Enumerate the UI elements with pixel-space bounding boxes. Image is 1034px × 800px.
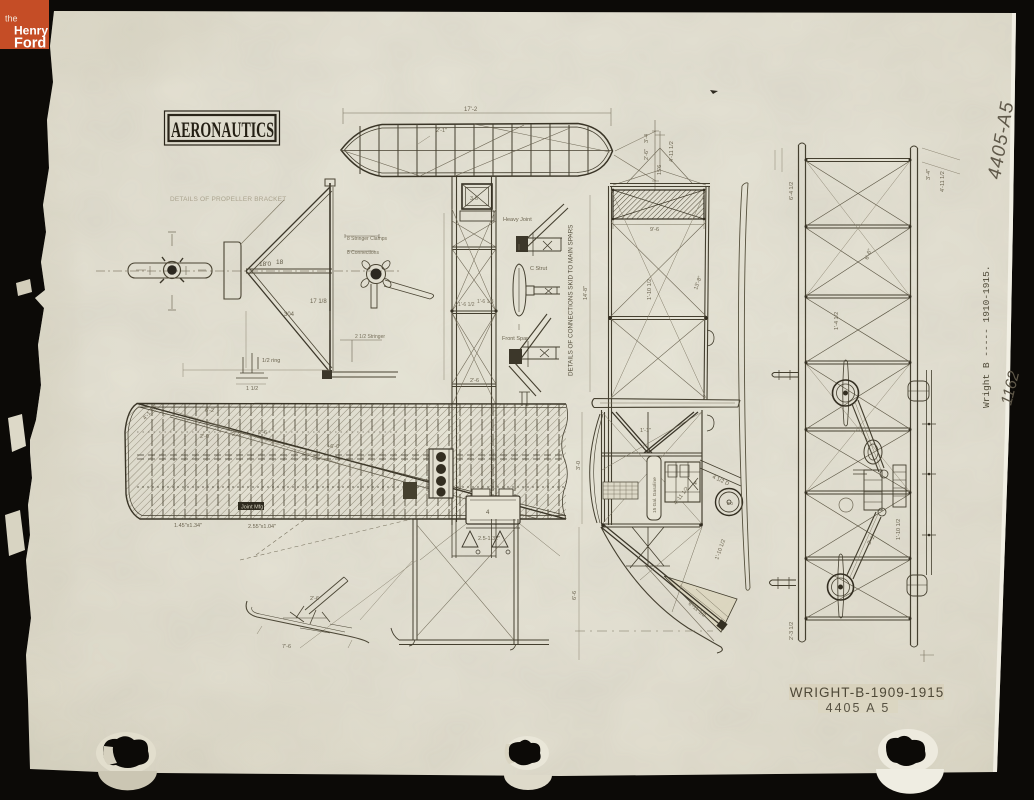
- svg-text:2'-6: 2'-6: [310, 596, 319, 602]
- svg-text:Ford: Ford: [14, 36, 46, 52]
- svg-text:1.45"x1.34": 1.45"x1.34": [174, 523, 202, 529]
- svg-text:18: 18: [276, 259, 284, 266]
- svg-text:Heavy Joint: Heavy Joint: [503, 217, 532, 223]
- svg-text:2'-1": 2'-1": [436, 128, 447, 134]
- svg-text:8 Connections: 8 Connections: [347, 250, 379, 256]
- svg-text:C Strut: C Strut: [530, 266, 548, 272]
- svg-text:DETAILS OF CONNECTIONS SKID TO: DETAILS OF CONNECTIONS SKID TO MAIN SPAR…: [568, 225, 575, 376]
- svg-text:3'-0: 3'-0: [576, 461, 582, 470]
- svg-text:1'-4 1/2: 1'-4 1/2: [834, 312, 840, 330]
- svg-text:DETAILS OF PROPELLER BRACKET: DETAILS OF PROPELLER BRACKET: [170, 196, 286, 203]
- svg-text:6'-4 1/2: 6'-4 1/2: [789, 182, 795, 200]
- svg-text:2'-6: 2'-6: [258, 430, 267, 436]
- svg-text:3'-4": 3'-4": [926, 169, 932, 180]
- svg-text:Wright B ----- 1910-1915.: Wright B ----- 1910-1915.: [981, 265, 992, 408]
- svg-text:4405 A 5: 4405 A 5: [826, 701, 891, 715]
- svg-text:1'-6 1/2: 1'-6 1/2: [458, 302, 475, 308]
- svg-text:2'-3 1/2: 2'-3 1/2: [789, 622, 795, 640]
- svg-text:6'-6: 6'-6: [572, 591, 578, 600]
- svg-text:2.55"x1.04": 2.55"x1.04": [248, 524, 276, 530]
- svg-text:1'-1": 1'-1": [640, 428, 651, 434]
- svg-text:1/2 ring: 1/2 ring: [262, 358, 280, 364]
- svg-text:2'-6: 2'-6: [470, 378, 479, 384]
- svg-text:304: 304: [284, 312, 295, 318]
- svg-text:2 1/2 Stringer: 2 1/2 Stringer: [355, 334, 385, 340]
- svg-text:4'-11 1/2: 4'-11 1/2: [669, 141, 675, 162]
- svg-text:7'-6: 7'-6: [282, 644, 291, 650]
- svg-text:+6'-6: +6'-6: [327, 444, 339, 450]
- svg-text:14'-8": 14'-8": [583, 286, 589, 300]
- svg-text:9'-6: 9'-6: [650, 227, 659, 233]
- svg-text:15 Gal. Gasoline: 15 Gal. Gasoline: [652, 477, 658, 513]
- svg-text:6'-2: 6'-2: [205, 408, 214, 414]
- svg-text:1'-6 1/8: 1'-6 1/8: [477, 299, 494, 305]
- svg-text:17'-2: 17'-2: [464, 107, 478, 113]
- svg-text:18'0: 18'0: [259, 261, 271, 268]
- svg-text:4'-11 1/2: 4'-11 1/2: [940, 171, 946, 192]
- svg-text:3'-4: 3'-4: [644, 134, 650, 143]
- svg-text:Front Spar: Front Spar: [502, 336, 528, 342]
- svg-text:3-6: 3-6: [470, 196, 478, 202]
- svg-text:2'0: 2'0: [727, 501, 733, 506]
- svg-text:8 Stringer Clamps: 8 Stringer Clamps: [347, 236, 388, 242]
- svg-text:1'-10 1/2: 1'-10 1/2: [647, 279, 653, 300]
- svg-text:Joint Mfg: Joint Mfg: [241, 505, 263, 511]
- svg-text:1 1/2: 1 1/2: [246, 386, 258, 392]
- svg-text:1'-10 1/2: 1'-10 1/2: [896, 519, 902, 540]
- svg-text:2'-6": 2'-6": [644, 149, 650, 160]
- svg-text:the: the: [5, 14, 18, 24]
- svg-text:2'-0: 2'-0: [200, 434, 209, 440]
- svg-text:WRIGHT-B-1909-1915: WRIGHT-B-1909-1915: [790, 685, 945, 700]
- svg-text:17 1/8: 17 1/8: [310, 299, 327, 305]
- svg-text:AERONAUTICS: AERONAUTICS: [171, 117, 274, 142]
